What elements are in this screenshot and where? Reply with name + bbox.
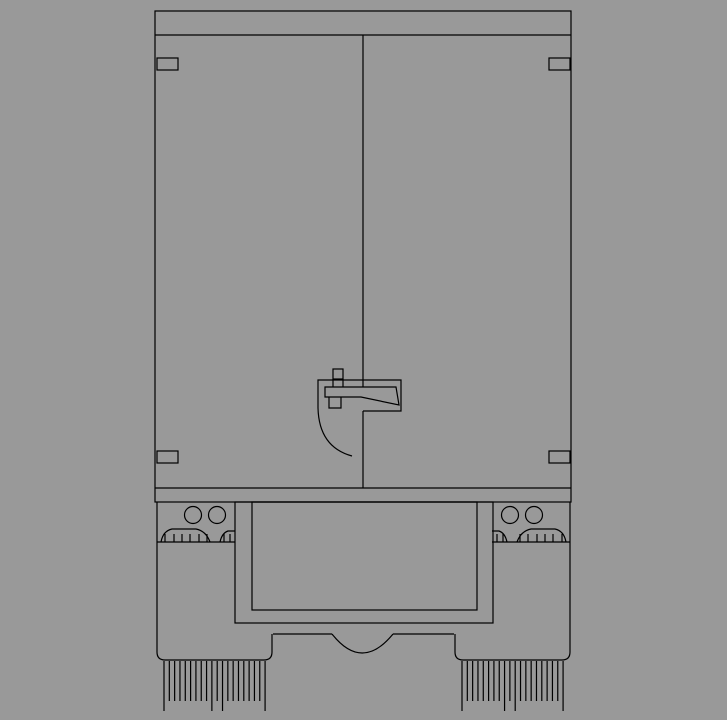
tire-left-outer — [161, 529, 210, 542]
handle-shaft-lower — [329, 397, 341, 408]
hinge-top-right — [549, 58, 570, 70]
drawing-surface — [0, 0, 727, 720]
mudflap-fringe-right — [462, 661, 563, 711]
marker-light-left-inner — [209, 507, 226, 524]
marker-light-right-outer — [526, 507, 543, 524]
mudflap-left-outline — [157, 502, 272, 660]
handle-housing — [318, 380, 401, 411]
mudflap-fringe-left — [164, 661, 265, 711]
tire-left-inner — [220, 531, 235, 542]
truck-rear-cad-drawing — [0, 0, 727, 720]
mudflap-right-outline — [455, 502, 570, 660]
differential-arc — [332, 634, 393, 653]
tread-ticks-right-inner — [497, 534, 503, 542]
door-swing-arc — [318, 408, 352, 456]
tread-ticks-left-outer — [165, 534, 207, 542]
tire-right-inner — [492, 531, 507, 542]
marker-light-left-outer — [185, 507, 202, 524]
hinge-bottom-left — [157, 451, 178, 463]
tread-ticks-left-inner — [224, 534, 230, 542]
handle-knob — [333, 369, 343, 379]
handle-bar — [325, 387, 399, 405]
hinge-top-left — [157, 58, 178, 70]
tread-ticks-right-outer — [520, 534, 562, 542]
marker-light-right-inner — [502, 507, 519, 524]
hinge-bottom-right — [549, 451, 570, 463]
tire-right-outer — [517, 529, 566, 542]
frame-inner-rect — [252, 502, 477, 610]
frame-outer-rect — [235, 502, 493, 623]
